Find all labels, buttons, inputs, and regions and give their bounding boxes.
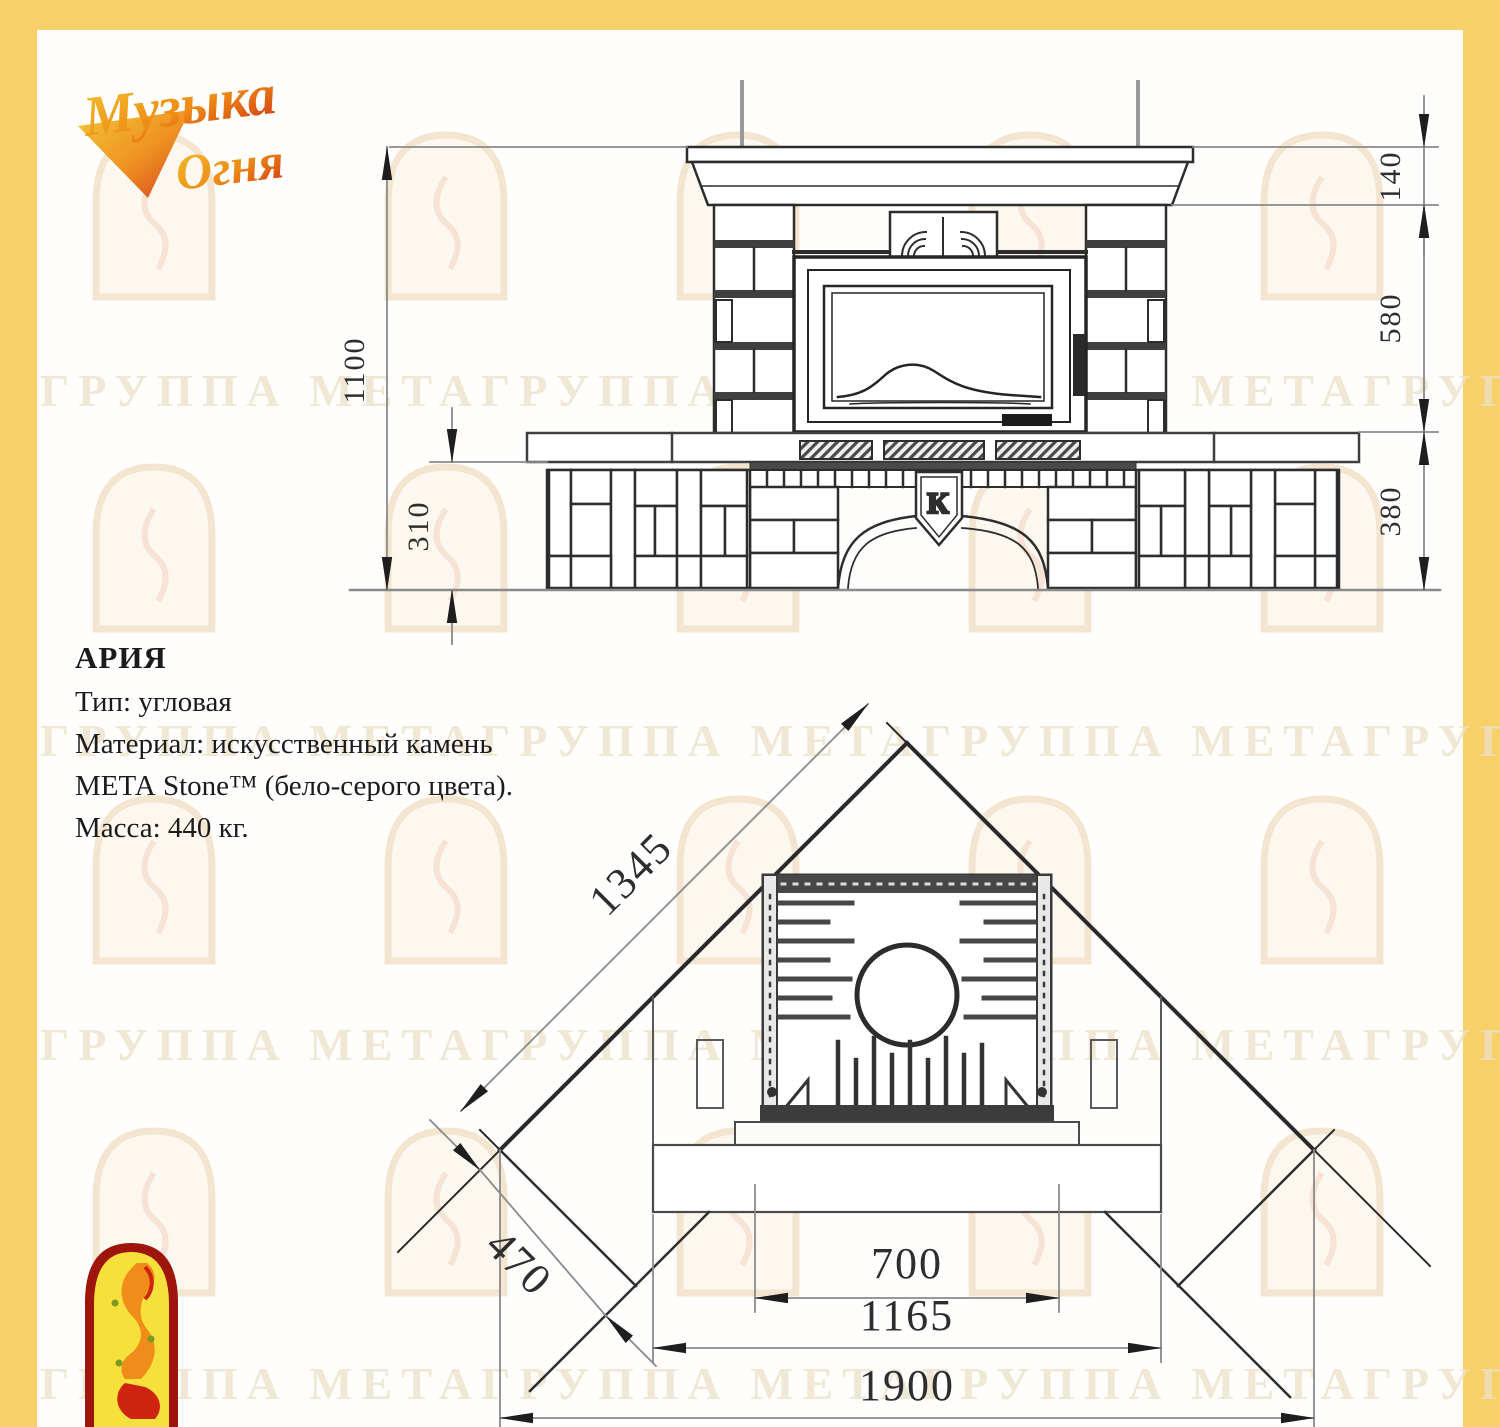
right-parquet-wing: [1136, 470, 1339, 588]
product-mass: Масса: 440 кг.: [75, 812, 513, 845]
product-material-1: Материал: искусственный камень: [75, 728, 513, 761]
dim-firebox-width: 700: [871, 1239, 943, 1288]
flue-outlet-circle: [857, 945, 957, 1045]
dim-mantel-height: 140: [1374, 151, 1407, 202]
dim-height-total: 1100: [338, 337, 371, 404]
left-parquet-wing: [547, 470, 750, 588]
vent-grilles: [800, 441, 1080, 459]
product-description: АРИЯ Тип: угловая Материал: искусственны…: [75, 640, 513, 845]
door-handle: [1073, 334, 1085, 396]
product-type: Тип: угловая: [75, 686, 513, 719]
dim-hearth-height: 310: [402, 501, 435, 552]
dim-base-height: 380: [1374, 486, 1407, 537]
firebox-plan: [735, 875, 1079, 1145]
product-material-2: МЕТА Stone™ (бело-серого цвета).: [75, 770, 513, 803]
page-frame: ГРУППА МЕТАГРУППА МЕТАГРУППА МЕТАГРУППА …: [0, 0, 1500, 1427]
meta-flame-logo: [85, 1243, 178, 1427]
hearth-slab: [735, 1122, 1079, 1145]
product-name: АРИЯ: [75, 640, 513, 676]
dim-middle-height: 580: [1374, 293, 1407, 344]
firebox-door: [794, 257, 1086, 432]
right-column: [1086, 205, 1166, 433]
hearth-grate-front: [760, 1105, 1054, 1122]
left-column: [714, 205, 794, 433]
dim-body-width: 1165: [860, 1291, 954, 1340]
dim-overall-width: 1900: [859, 1361, 955, 1410]
keystone-letter: К: [927, 487, 951, 520]
mantel-shelf: [687, 147, 1193, 205]
watermark-text-row: ГРУППА МЕТАГРУППА МЕТАГРУППА МЕТАГРУППА …: [40, 1358, 1500, 1409]
